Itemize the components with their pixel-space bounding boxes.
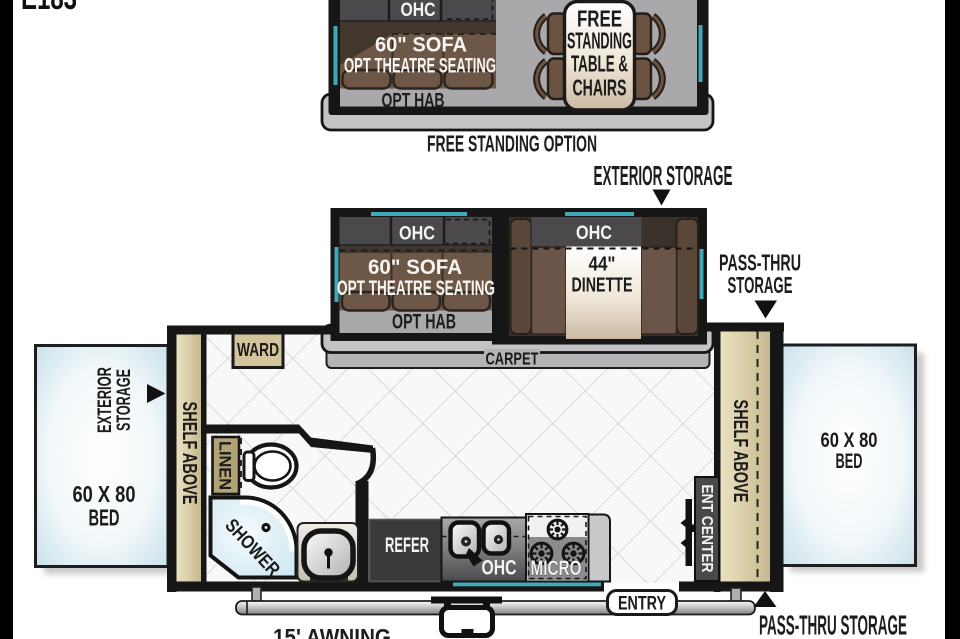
svg-text:60" SOFA: 60" SOFA xyxy=(375,34,467,57)
svg-text:OPT HAB: OPT HAB xyxy=(392,311,456,334)
svg-text:OPT HAB: OPT HAB xyxy=(382,90,445,112)
svg-text:ENTRY: ENTRY xyxy=(618,593,666,615)
svg-text:STORAGE: STORAGE xyxy=(728,272,793,298)
svg-text:ENT CENTER: ENT CENTER xyxy=(698,485,715,573)
svg-text:60 X 80: 60 X 80 xyxy=(73,481,136,507)
svg-text:SHELF ABOVE: SHELF ABOVE xyxy=(729,400,751,503)
svg-text:WARD: WARD xyxy=(237,339,279,360)
svg-text:STORAGE: STORAGE xyxy=(114,369,135,431)
svg-text:15' AWNING: 15' AWNING xyxy=(273,624,391,639)
svg-text:TABLE &: TABLE & xyxy=(571,51,628,77)
svg-text:EXTERIOR STORAGE: EXTERIOR STORAGE xyxy=(594,160,733,191)
svg-text:44": 44" xyxy=(589,253,616,276)
svg-text:OHC: OHC xyxy=(576,222,612,244)
svg-text:OHC: OHC xyxy=(482,557,517,580)
svg-text:MICRO: MICRO xyxy=(531,557,582,580)
svg-text:CHAIRS: CHAIRS xyxy=(573,75,627,101)
svg-text:FREE STANDING OPTION: FREE STANDING OPTION xyxy=(427,131,597,157)
svg-text:DINETTE: DINETTE xyxy=(572,274,633,297)
svg-text:OHC: OHC xyxy=(401,0,436,21)
svg-text:BED: BED xyxy=(836,450,863,473)
svg-text:E183: E183 xyxy=(21,0,77,17)
svg-text:BED: BED xyxy=(89,505,120,531)
svg-text:LINEN: LINEN xyxy=(216,441,234,490)
svg-text:EXTERIOR: EXTERIOR xyxy=(95,367,116,433)
svg-text:OPT THEATRE SEATING: OPT THEATRE SEATING xyxy=(337,276,495,300)
svg-text:OPT THEATRE SEATING: OPT THEATRE SEATING xyxy=(344,55,496,78)
svg-text:REFER: REFER xyxy=(385,534,429,557)
svg-text:PASS-THRU STORAGE: PASS-THRU STORAGE xyxy=(759,610,907,639)
svg-text:CARPET: CARPET xyxy=(486,349,539,369)
svg-text:OHC: OHC xyxy=(399,223,435,245)
svg-text:SHELF ABOVE: SHELF ABOVE xyxy=(178,402,200,505)
svg-text:60 X 80: 60 X 80 xyxy=(821,429,878,452)
